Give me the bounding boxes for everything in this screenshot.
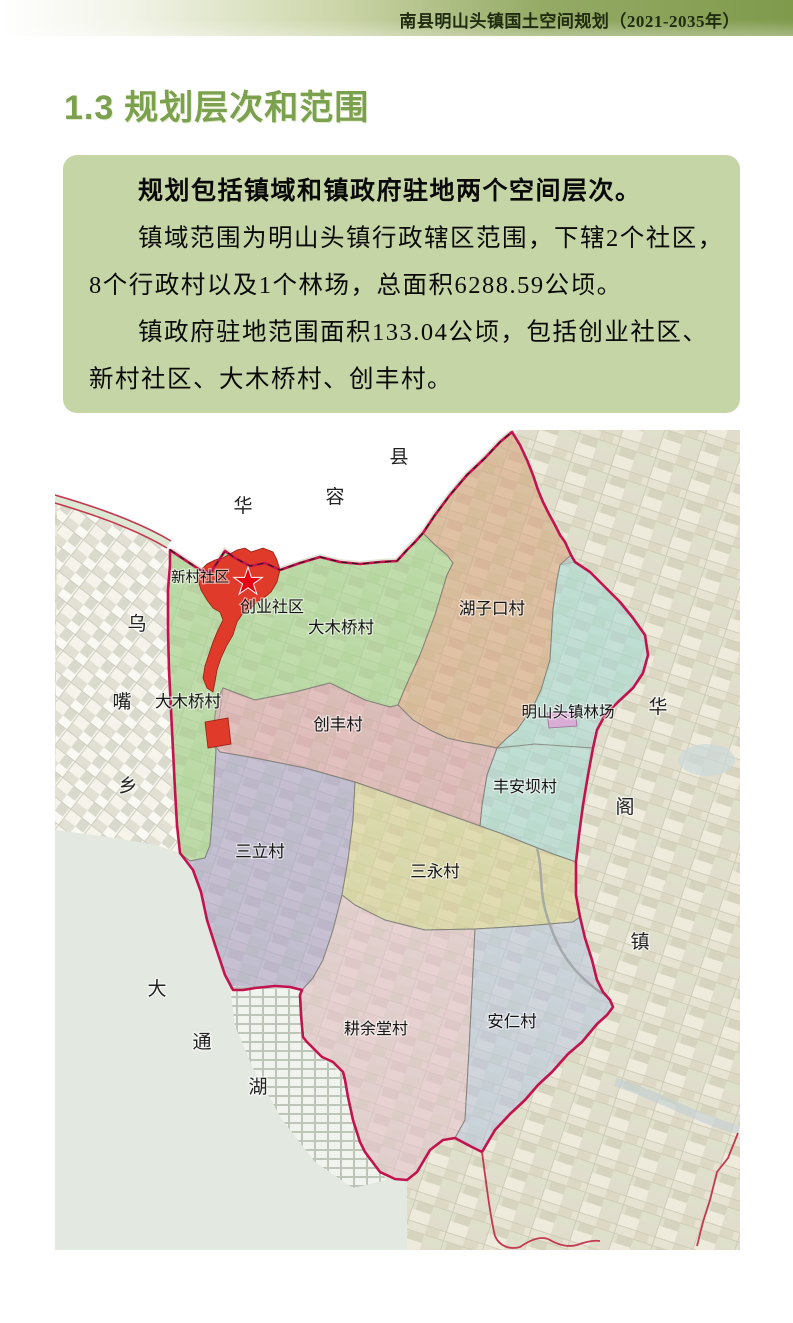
- region-label-大木桥村: 大木桥村: [155, 692, 221, 711]
- region-label-大木桥村: 大木桥村: [308, 618, 374, 637]
- adjacent-label-嘴-4: 嘴: [112, 691, 131, 713]
- water-patch: [679, 744, 735, 776]
- section-heading: 1.3规划层次和范围: [64, 80, 369, 129]
- region-label-创丰村: 创丰村: [313, 715, 363, 734]
- adjacent-label-镇-11: 镇: [630, 931, 649, 953]
- summary-line-5: 新村社区、大木桥村、创丰村。: [89, 356, 716, 403]
- adjacent-label-华-9: 华: [648, 696, 667, 718]
- summary-line-4: 镇政府驻地范围面积133.04公顷，包括创业社区、: [89, 309, 716, 356]
- adjacent-label-乌-3: 乌: [127, 613, 146, 635]
- region-label-湖子口村: 湖子口村: [459, 599, 525, 618]
- region-label-明山头镇林场: 明山头镇林场: [521, 703, 614, 721]
- adjacent-label-通-7: 通: [192, 1031, 211, 1053]
- region-label-耕余堂村: 耕余堂村: [344, 1019, 408, 1038]
- adjacent-label-乡-5: 乡: [118, 775, 137, 797]
- planning-map-svg: 新村社区创业社区大木桥村湖子口村明山头镇林场大木桥村创丰村丰安坝村三立村三永村耕…: [55, 430, 740, 1250]
- adjacent-label-湖-8: 湖: [248, 1076, 267, 1098]
- section-number: 1.3: [64, 89, 114, 127]
- region-label-三永村: 三永村: [410, 862, 460, 881]
- document-title: 南县明山头镇国土空间规划（2021-2035年）: [399, 7, 740, 32]
- region-label-三立村: 三立村: [235, 842, 285, 861]
- header-bar: 南县明山头镇国土空间规划（2021-2035年）: [0, 0, 793, 36]
- summary-line-1: 规划包括镇域和镇政府驻地两个空间层次。: [89, 168, 716, 215]
- adjacent-label-华-0: 华: [233, 495, 252, 517]
- section-title: 规划层次和范围: [124, 89, 369, 127]
- adjacent-label-容-1: 容: [325, 486, 344, 508]
- region-label-新村社区: 新村社区: [171, 569, 229, 586]
- adjacent-label-阁-10: 阁: [615, 796, 634, 818]
- town-seat-patch: [205, 718, 231, 748]
- region-label-创业社区: 创业社区: [240, 598, 304, 616]
- summary-box: 规划包括镇域和镇政府驻地两个空间层次。镇域范围为明山头镇行政辖区范围，下辖2个社…: [63, 155, 740, 413]
- region-label-安仁村: 安仁村: [487, 1012, 537, 1031]
- adjacent-label-县-2: 县: [389, 447, 408, 468]
- adjacent-label-大-6: 大: [147, 978, 166, 1000]
- satellite-urban-area: [55, 504, 180, 853]
- region-label-丰安坝村: 丰安坝村: [493, 778, 557, 796]
- summary-line-2: 镇域范围为明山头镇行政辖区范围，下辖2个社区，: [89, 215, 716, 262]
- summary-line-3: 8个行政村以及1个林场，总面积6288.59公顷。: [89, 262, 716, 309]
- planning-map: 新村社区创业社区大木桥村湖子口村明山头镇林场大木桥村创丰村丰安坝村三立村三永村耕…: [55, 430, 740, 1250]
